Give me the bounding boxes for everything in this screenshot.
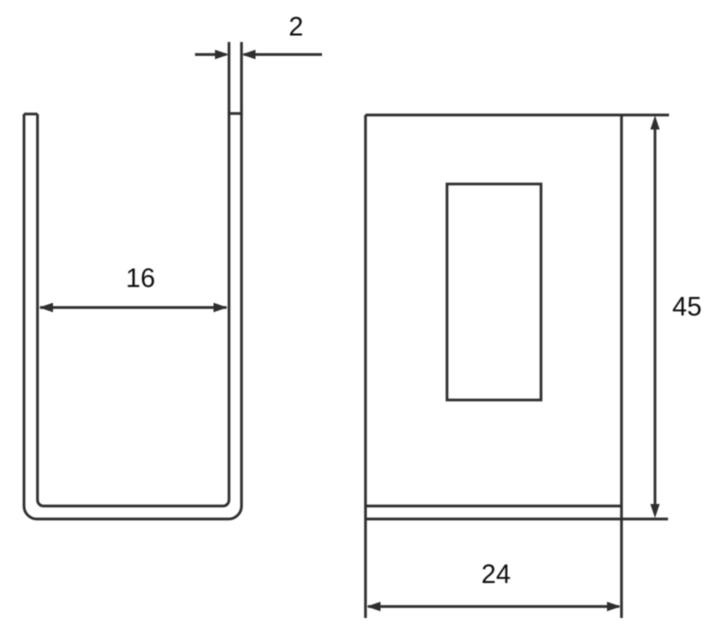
svg-text:45: 45 bbox=[672, 292, 701, 322]
svg-text:16: 16 bbox=[126, 263, 155, 293]
svg-text:24: 24 bbox=[481, 559, 510, 589]
svg-text:2: 2 bbox=[289, 12, 304, 42]
